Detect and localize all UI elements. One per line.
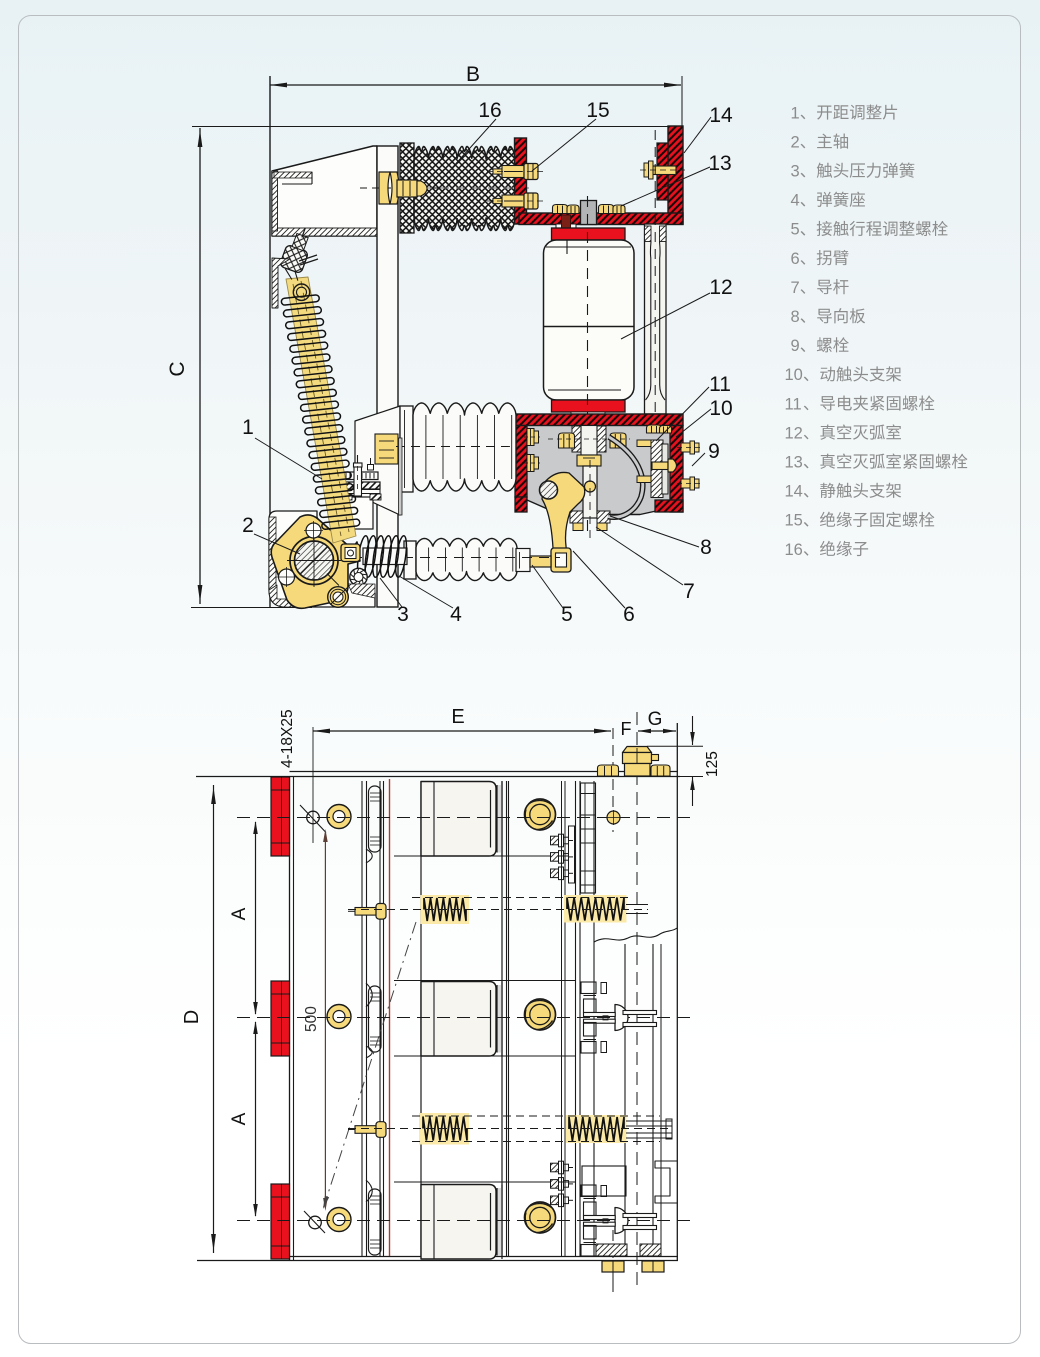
svg-text:4: 4 <box>450 603 462 626</box>
svg-text:7: 7 <box>791 279 800 297</box>
svg-text:5: 5 <box>791 221 800 239</box>
svg-text:1: 1 <box>242 416 254 439</box>
svg-text:12: 12 <box>709 276 732 299</box>
svg-text:4: 4 <box>791 192 800 210</box>
svg-text:12: 12 <box>785 424 803 442</box>
svg-text:C: C <box>166 361 189 376</box>
svg-text:125: 125 <box>704 751 721 777</box>
svg-text:1: 1 <box>791 104 800 122</box>
svg-text:500: 500 <box>303 1006 320 1032</box>
svg-text:10: 10 <box>785 366 803 384</box>
svg-text:D: D <box>181 1010 203 1024</box>
svg-text:14: 14 <box>785 483 803 501</box>
svg-text:6: 6 <box>623 603 635 626</box>
svg-text:2: 2 <box>791 133 800 151</box>
svg-text:G: G <box>648 709 663 730</box>
svg-text:3: 3 <box>791 163 800 181</box>
svg-text:E: E <box>451 706 464 728</box>
svg-text:5: 5 <box>561 603 573 626</box>
svg-text:10: 10 <box>709 397 732 420</box>
svg-text:13: 13 <box>708 152 731 175</box>
svg-text:A: A <box>229 907 250 920</box>
svg-text:2: 2 <box>242 514 254 537</box>
svg-text:15: 15 <box>785 512 803 530</box>
svg-text:A: A <box>229 1112 250 1125</box>
svg-text:11: 11 <box>709 373 731 396</box>
svg-text:9: 9 <box>791 337 800 355</box>
svg-text:15: 15 <box>586 99 609 122</box>
svg-text:14: 14 <box>709 104 733 127</box>
svg-text:16: 16 <box>785 541 803 559</box>
svg-text:8: 8 <box>791 308 800 326</box>
svg-text:13: 13 <box>785 454 803 472</box>
svg-text:16: 16 <box>478 99 501 122</box>
svg-text:8: 8 <box>700 536 712 559</box>
svg-text:3: 3 <box>397 603 409 626</box>
svg-text:B: B <box>466 63 480 86</box>
svg-text:4-18X25: 4-18X25 <box>279 709 296 768</box>
svg-text:6: 6 <box>791 250 800 268</box>
svg-text:F: F <box>621 719 632 739</box>
svg-text:9: 9 <box>708 440 720 463</box>
svg-text:11: 11 <box>785 395 802 413</box>
svg-text:7: 7 <box>683 580 695 603</box>
